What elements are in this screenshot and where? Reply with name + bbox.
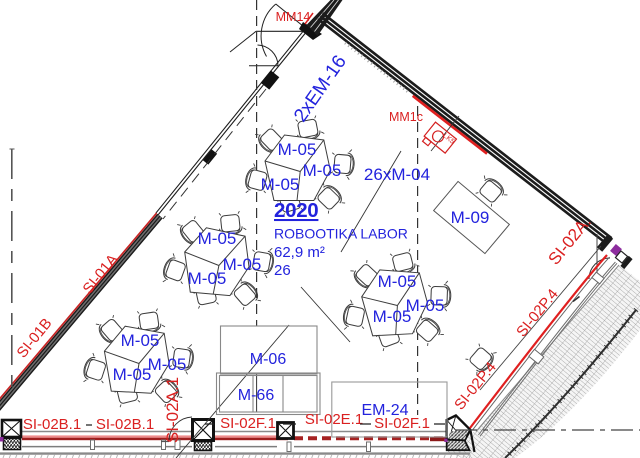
svg-text:M-05: M-05 (278, 140, 317, 159)
svg-text:M-05: M-05 (261, 175, 300, 194)
svg-text:ROBOOTIKA LABOR: ROBOOTIKA LABOR (274, 226, 408, 242)
svg-text:SI-02A.1: SI-02A.1 (163, 377, 182, 443)
svg-text:M-05: M-05 (188, 269, 227, 288)
svg-text:2020: 2020 (274, 199, 318, 222)
svg-text:SI-02E.1: SI-02E.1 (305, 411, 363, 428)
svg-text:26: 26 (274, 262, 291, 279)
svg-text:M-05: M-05 (406, 296, 445, 315)
svg-text:M-06: M-06 (250, 351, 287, 368)
svg-text:62,9 m²: 62,9 m² (274, 244, 325, 261)
svg-text:M-09: M-09 (451, 208, 490, 227)
svg-text:M-05: M-05 (113, 365, 152, 384)
svg-text:SI-02B.1: SI-02B.1 (23, 416, 81, 433)
svg-text:M-05: M-05 (223, 255, 262, 274)
svg-text:M-66: M-66 (238, 387, 275, 404)
svg-text:MM14: MM14 (276, 10, 311, 24)
svg-text:SI-02F.1: SI-02F.1 (220, 415, 276, 432)
svg-text:SI-02F.1: SI-02F.1 (374, 415, 430, 432)
svg-text:M-05: M-05 (303, 161, 342, 180)
svg-text:M-05: M-05 (121, 331, 160, 350)
svg-text:M-05: M-05 (378, 272, 417, 291)
svg-text:MM1c: MM1c (389, 110, 423, 124)
svg-text:M-05: M-05 (198, 229, 237, 248)
svg-text:SI-02B.1: SI-02B.1 (96, 416, 154, 433)
svg-text:M-05: M-05 (148, 355, 187, 374)
svg-text:M-05: M-05 (373, 307, 412, 326)
svg-text:26xM-04: 26xM-04 (364, 165, 430, 184)
